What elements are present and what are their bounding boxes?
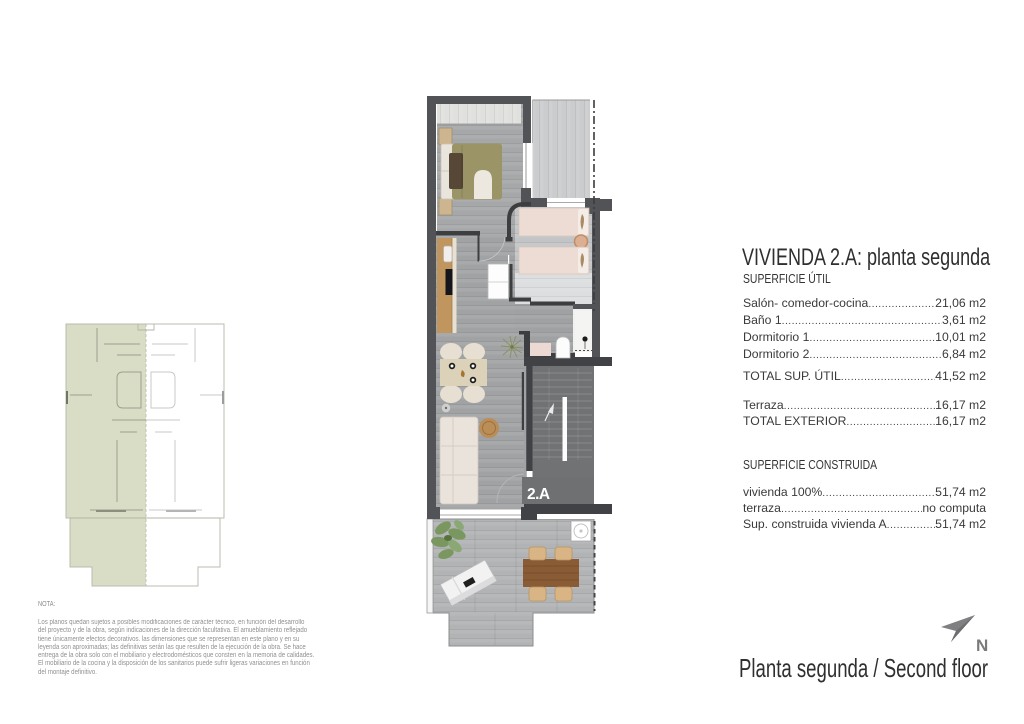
svg-text:N: N: [976, 636, 988, 655]
svg-text:2.A: 2.A: [527, 486, 550, 503]
